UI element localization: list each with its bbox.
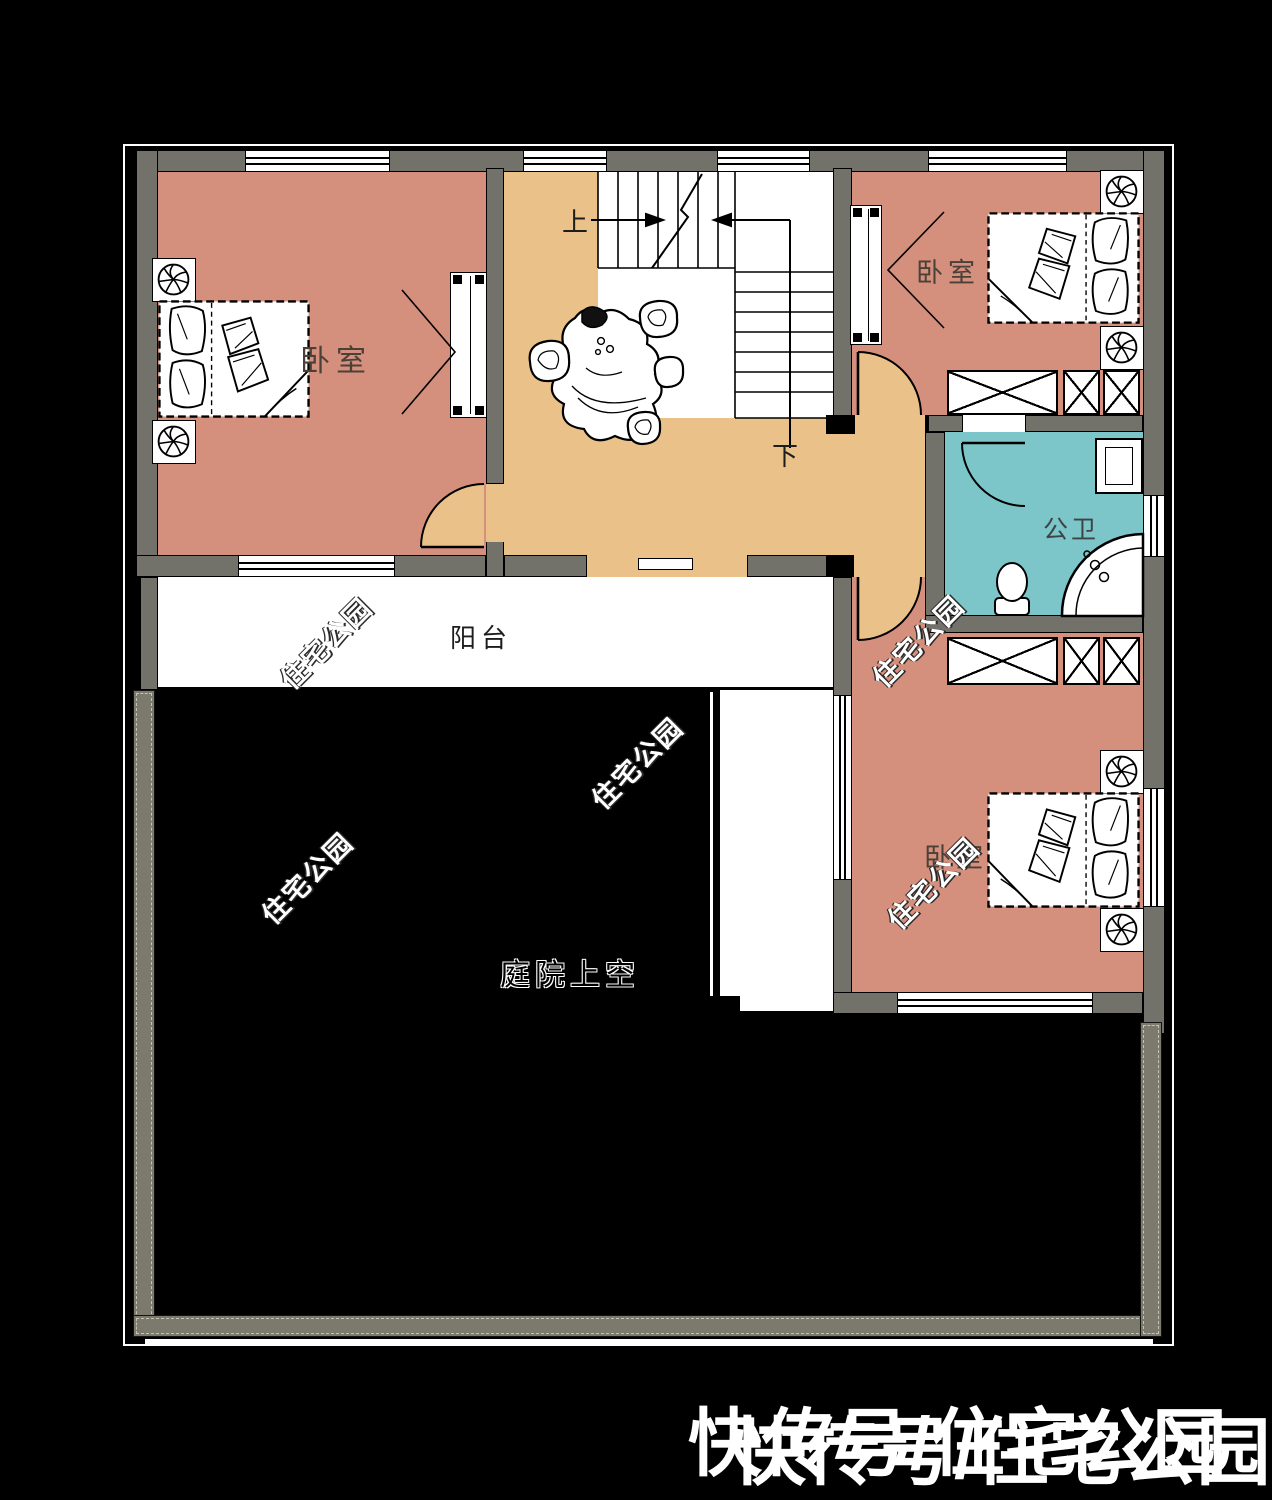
stairs-down-label: 下 <box>772 436 798 473</box>
floorplan-canvas: 茶室 卧室 卧室 卧室 公卫 阳台 庭院上空 上 下 住宅公园 住宅公园 住宅公… <box>0 0 1272 1500</box>
footer-watermark: 快传号/住宅公园 快传号/住宅公园 <box>688 1384 1272 1500</box>
footer-watermark-text-overlap: 快传号/住宅公园 <box>732 1393 1271 1500</box>
bedroom-top-right-label: 卧室 <box>916 251 980 290</box>
courtyard-void-label: 庭院上空 <box>500 950 640 994</box>
stairs-up-label: 上 <box>562 202 588 239</box>
bathtub-icon <box>1062 534 1143 616</box>
balcony-label: 阳台 <box>450 618 512 655</box>
toilet-icon <box>995 563 1029 615</box>
bathroom-label: 公卫 <box>1043 510 1099 546</box>
bedroom-top-left-label: 卧室 <box>300 336 372 380</box>
rock-garden-symbol <box>530 301 683 444</box>
wardrobe-chevron <box>402 290 455 414</box>
